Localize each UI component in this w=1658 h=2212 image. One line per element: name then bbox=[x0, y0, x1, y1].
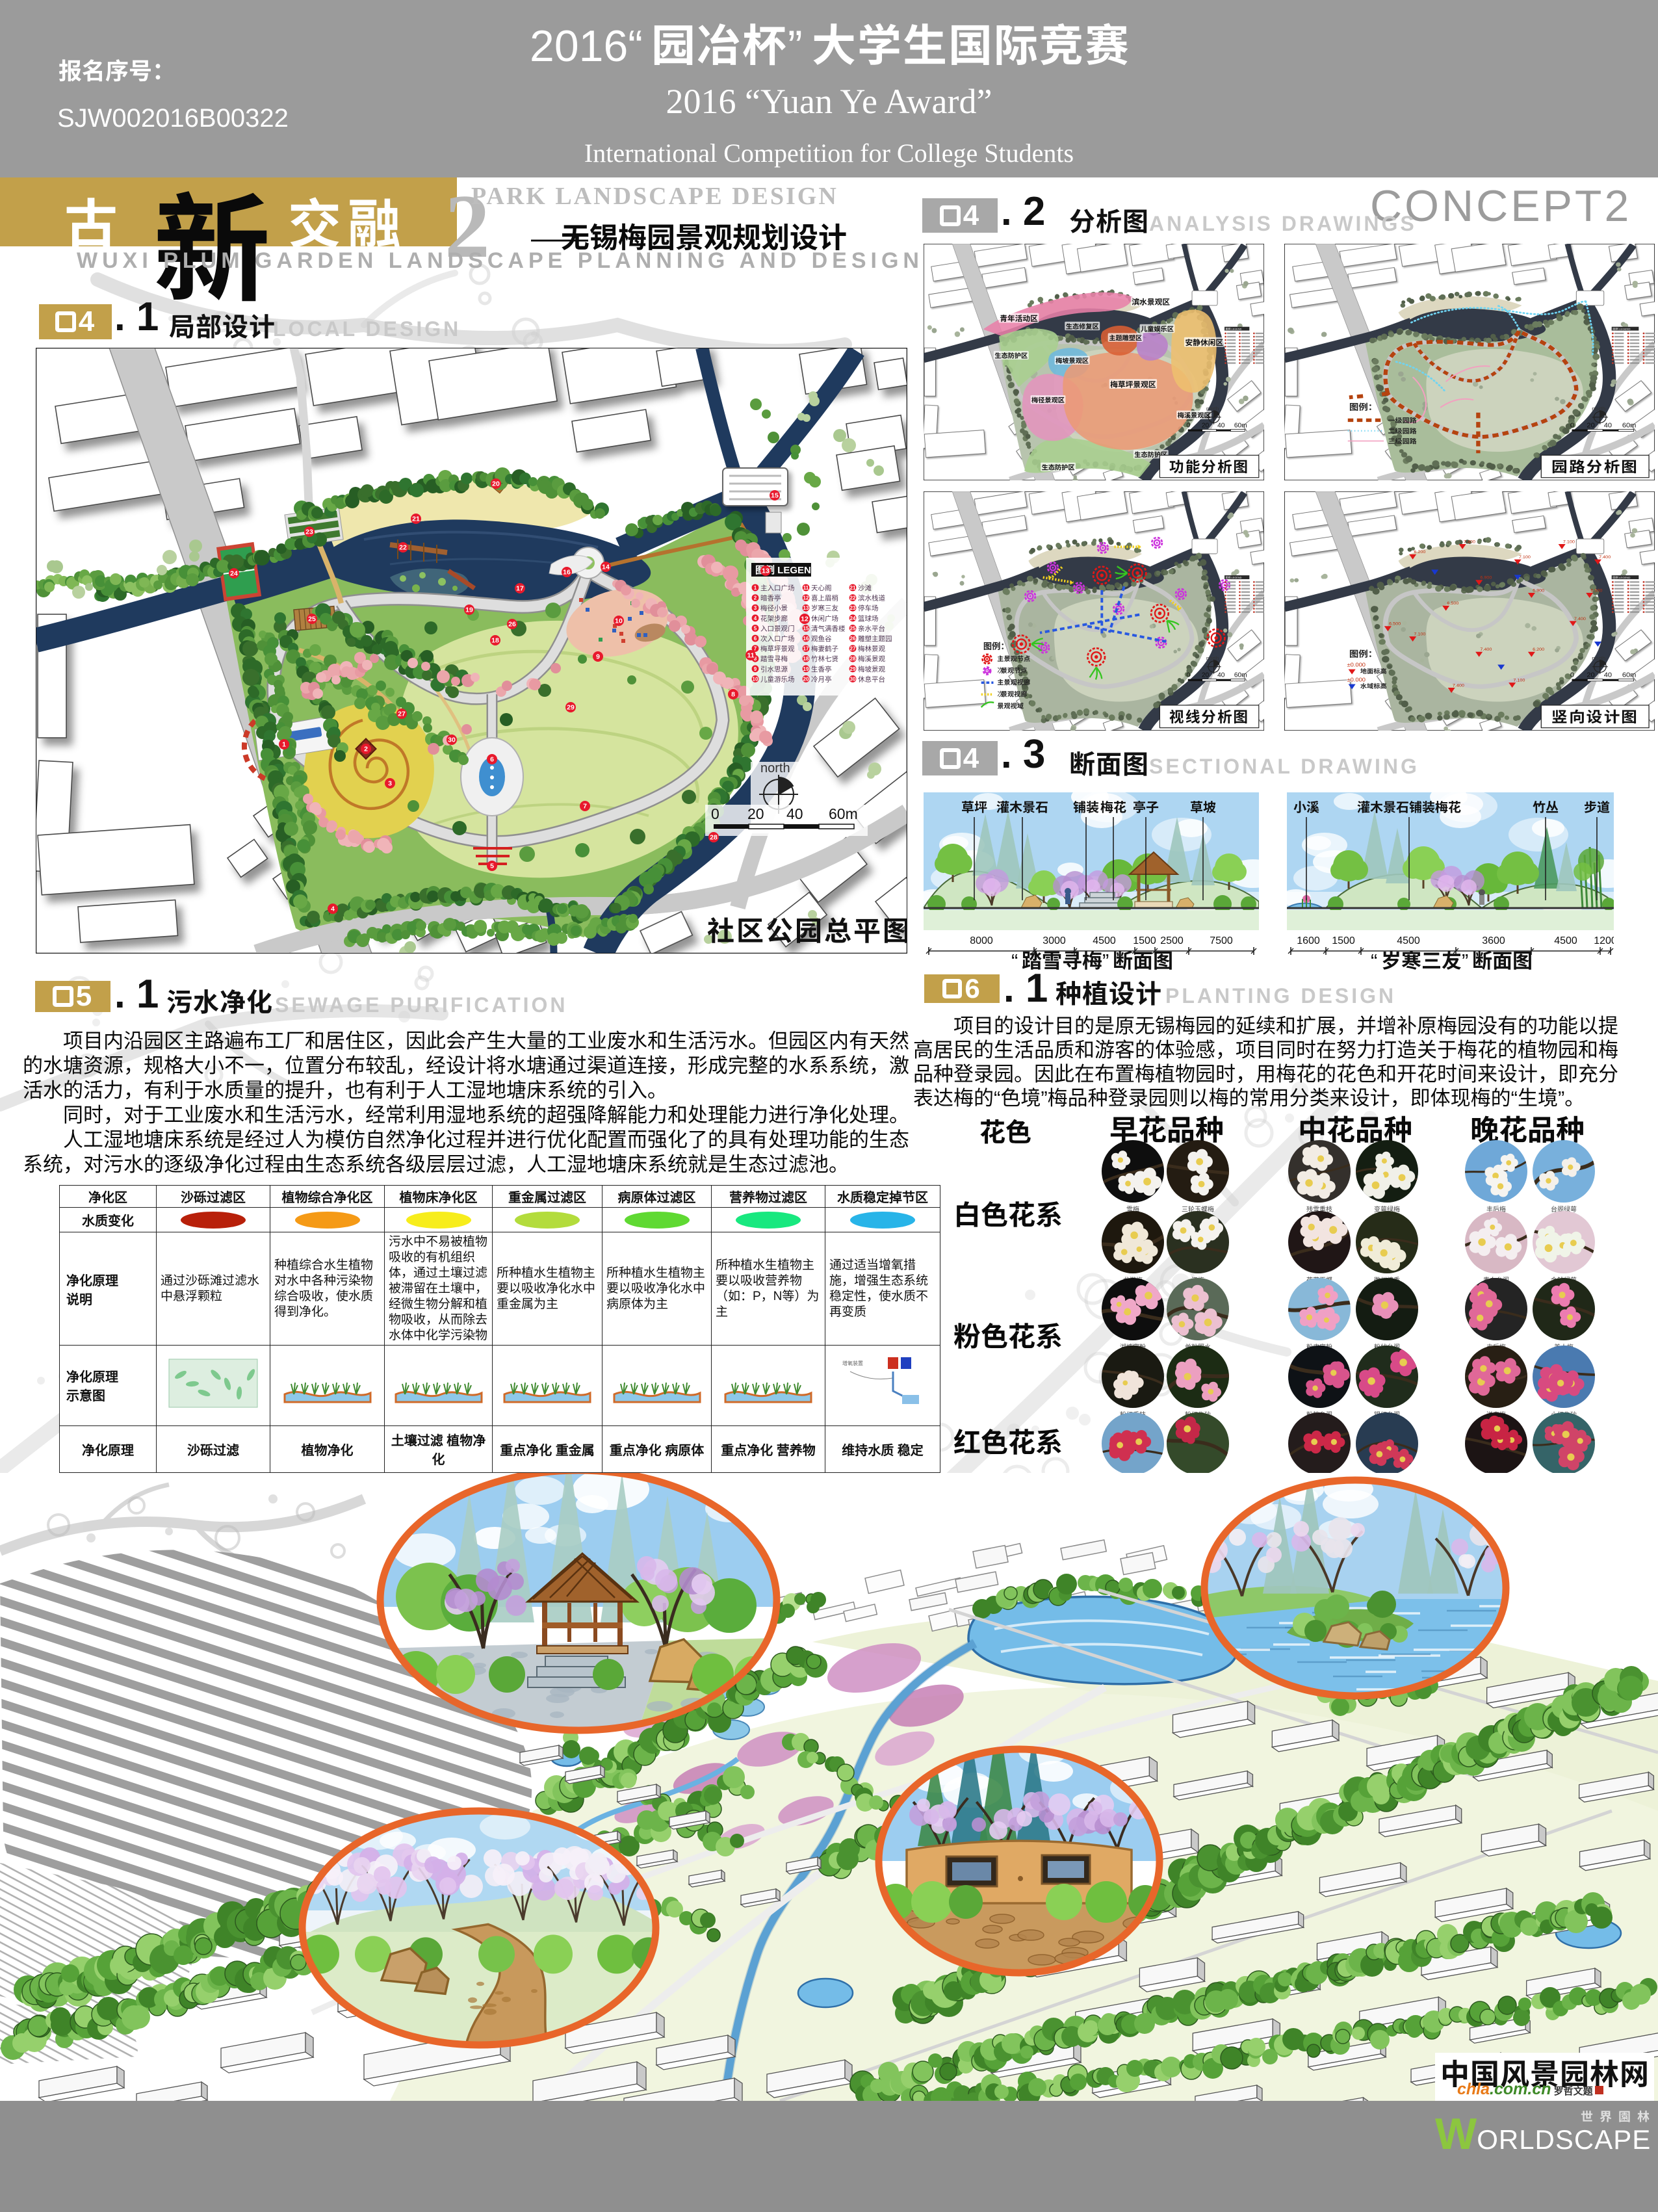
svg-text:10: 10 bbox=[753, 676, 758, 682]
svg-text:23: 23 bbox=[850, 605, 856, 611]
svg-text:踏雪寻梅: 踏雪寻梅 bbox=[760, 655, 788, 663]
svg-text:25: 25 bbox=[308, 616, 316, 623]
svg-text:2: 2 bbox=[364, 746, 368, 753]
svg-text:儿童游乐场: 儿童游乐场 bbox=[760, 675, 795, 683]
svg-text:28: 28 bbox=[850, 656, 856, 662]
svg-text:梅林景观: 梅林景观 bbox=[858, 645, 885, 653]
svg-text:观鱼谷: 观鱼谷 bbox=[811, 634, 832, 643]
svg-text:生香亭: 生香亭 bbox=[811, 665, 832, 673]
svg-text:40: 40 bbox=[1217, 671, 1225, 679]
svg-text:2500: 2500 bbox=[1160, 935, 1184, 946]
svg-text:8000: 8000 bbox=[970, 935, 993, 946]
svg-text:16: 16 bbox=[803, 636, 809, 642]
svg-text:40: 40 bbox=[1217, 422, 1225, 429]
svg-text:入口景观门: 入口景观门 bbox=[760, 624, 795, 632]
svg-text:”: ” bbox=[1102, 950, 1109, 972]
svg-text:6.200: 6.200 bbox=[1414, 550, 1425, 554]
svg-text:7.100: 7.100 bbox=[1414, 632, 1425, 637]
svg-text:40: 40 bbox=[786, 805, 803, 822]
svg-text:13: 13 bbox=[803, 605, 809, 611]
svg-text:岁寒三友: 岁寒三友 bbox=[811, 604, 838, 612]
svg-text:雕塑主题园: 雕塑主题园 bbox=[858, 634, 892, 643]
svg-text:60m: 60m bbox=[1234, 671, 1247, 679]
svg-text:20: 20 bbox=[803, 676, 809, 682]
svg-text:4500: 4500 bbox=[1554, 935, 1577, 946]
svg-text:图例 LEGEND: 图例 LEGEND bbox=[1226, 327, 1242, 330]
svg-text:2016“: 2016“ bbox=[530, 21, 643, 71]
svg-text:1: 1 bbox=[282, 741, 286, 749]
svg-text:7.100: 7.100 bbox=[1513, 679, 1525, 683]
svg-text:13: 13 bbox=[762, 567, 770, 575]
svg-text:24: 24 bbox=[850, 616, 856, 621]
svg-text:60m: 60m bbox=[1622, 671, 1637, 679]
svg-text:17: 17 bbox=[516, 585, 524, 593]
svg-text:”: ” bbox=[788, 21, 803, 71]
svg-text:1500: 1500 bbox=[1332, 935, 1355, 946]
svg-text:26: 26 bbox=[508, 621, 516, 629]
svg-text:0: 0 bbox=[1186, 422, 1190, 429]
svg-text:12: 12 bbox=[803, 595, 809, 601]
svg-text:26: 26 bbox=[850, 636, 856, 642]
svg-text:7: 7 bbox=[754, 646, 757, 652]
svg-text:29: 29 bbox=[567, 704, 575, 712]
svg-text:30: 30 bbox=[850, 676, 856, 682]
svg-text:8: 8 bbox=[731, 691, 735, 699]
svg-text:6.200: 6.200 bbox=[1533, 647, 1544, 652]
svg-text:40: 40 bbox=[1604, 671, 1612, 679]
svg-text:60m: 60m bbox=[829, 805, 858, 822]
svg-text:20: 20 bbox=[1202, 422, 1210, 429]
svg-text:north: north bbox=[1206, 406, 1219, 412]
svg-text:7.400: 7.400 bbox=[1599, 555, 1611, 560]
svg-text:29: 29 bbox=[850, 666, 856, 672]
svg-text:18: 18 bbox=[803, 656, 809, 662]
svg-text:25: 25 bbox=[850, 625, 856, 631]
svg-text:19: 19 bbox=[803, 666, 809, 672]
svg-text:20: 20 bbox=[1587, 671, 1594, 679]
svg-text:停车场: 停车场 bbox=[858, 604, 879, 612]
svg-text:天心阁: 天心阁 bbox=[811, 584, 832, 592]
svg-text:±0.000: ±0.000 bbox=[1347, 677, 1366, 683]
svg-text:花架步廊: 花架步廊 bbox=[760, 614, 788, 623]
svg-text:14: 14 bbox=[602, 564, 610, 571]
svg-text:12: 12 bbox=[801, 616, 809, 623]
svg-text:次入口广场: 次入口广场 bbox=[760, 634, 795, 643]
svg-text:north: north bbox=[1592, 406, 1605, 412]
svg-text:22: 22 bbox=[850, 595, 856, 601]
svg-text:24: 24 bbox=[230, 570, 238, 578]
svg-text:主入口广场: 主入口广场 bbox=[760, 584, 795, 592]
svg-text:7: 7 bbox=[583, 803, 587, 811]
svg-text:“: “ bbox=[1371, 950, 1377, 972]
svg-text:0: 0 bbox=[1570, 422, 1574, 429]
svg-text:20: 20 bbox=[1202, 671, 1210, 679]
svg-text:20: 20 bbox=[1587, 422, 1594, 429]
svg-text:6: 6 bbox=[490, 756, 494, 764]
svg-text:11: 11 bbox=[747, 652, 754, 660]
svg-text:15: 15 bbox=[771, 492, 779, 500]
svg-text:9: 9 bbox=[596, 653, 600, 661]
svg-text:喜上眉梢: 喜上眉梢 bbox=[811, 594, 838, 603]
svg-text:9: 9 bbox=[754, 666, 757, 672]
svg-text:图例 LEGEND: 图例 LEGEND bbox=[1613, 575, 1630, 579]
svg-text:梅妻鹤子: 梅妻鹤子 bbox=[811, 645, 838, 653]
svg-text:滨水栈道: 滨水栈道 bbox=[858, 594, 885, 603]
svg-text:10: 10 bbox=[615, 618, 623, 625]
svg-text:7.400: 7.400 bbox=[1453, 684, 1464, 688]
svg-text:沙滩: 沙滩 bbox=[858, 584, 872, 592]
svg-text:6: 6 bbox=[754, 636, 757, 642]
svg-text:”: ” bbox=[1462, 950, 1468, 972]
svg-text:休闲广场: 休闲广场 bbox=[811, 614, 838, 623]
svg-text:30: 30 bbox=[448, 736, 456, 744]
svg-text:图例 LEGEND: 图例 LEGEND bbox=[1613, 327, 1630, 331]
svg-text:20: 20 bbox=[492, 480, 500, 488]
svg-text:6.900: 6.900 bbox=[1480, 576, 1492, 580]
svg-text:40: 40 bbox=[1604, 422, 1612, 429]
svg-text:21: 21 bbox=[850, 585, 856, 591]
svg-text:20: 20 bbox=[747, 805, 764, 822]
svg-text:3: 3 bbox=[388, 780, 392, 788]
svg-text:6.500: 6.500 bbox=[1389, 622, 1401, 627]
svg-text:27: 27 bbox=[850, 646, 856, 652]
svg-text:6.500: 6.500 bbox=[1590, 589, 1602, 593]
svg-text:0: 0 bbox=[711, 805, 719, 822]
svg-text:north: north bbox=[1592, 655, 1605, 662]
svg-text:7500: 7500 bbox=[1210, 935, 1233, 946]
svg-text:5: 5 bbox=[490, 863, 494, 870]
svg-text:竹林七贤: 竹林七贤 bbox=[811, 655, 838, 663]
svg-text:7.400: 7.400 bbox=[1574, 617, 1586, 621]
svg-text:暗香亭: 暗香亭 bbox=[760, 594, 781, 603]
svg-text:11: 11 bbox=[803, 585, 809, 591]
svg-text:60m: 60m bbox=[1622, 422, 1637, 429]
svg-text:6.500: 6.500 bbox=[1447, 601, 1458, 606]
svg-text:梅坡景观: 梅坡景观 bbox=[858, 665, 885, 673]
svg-text:28: 28 bbox=[710, 834, 718, 842]
svg-text:冷月亭: 冷月亭 bbox=[811, 675, 832, 683]
svg-text:3: 3 bbox=[754, 605, 757, 611]
svg-text:15: 15 bbox=[803, 625, 809, 631]
svg-text:0: 0 bbox=[1570, 671, 1574, 679]
svg-text:清气满香楼: 清气满香楼 bbox=[811, 624, 846, 632]
svg-text:4: 4 bbox=[331, 905, 335, 913]
svg-text:23: 23 bbox=[305, 528, 313, 536]
svg-text:21: 21 bbox=[412, 515, 420, 523]
svg-text:增氧装置: 增氧装置 bbox=[842, 1360, 863, 1366]
svg-text:引水思源: 引水思源 bbox=[760, 665, 788, 673]
svg-text:1: 1 bbox=[754, 585, 757, 591]
svg-text:4: 4 bbox=[754, 616, 757, 621]
svg-text:休息平台: 休息平台 bbox=[858, 675, 885, 683]
svg-text:6.900: 6.900 bbox=[1533, 589, 1544, 593]
svg-text:3600: 3600 bbox=[1482, 935, 1505, 946]
svg-text:梅草坪景观: 梅草坪景观 bbox=[760, 645, 795, 653]
svg-text:4500: 4500 bbox=[1397, 935, 1420, 946]
svg-text:60m: 60m bbox=[1234, 422, 1247, 429]
svg-text:1600: 1600 bbox=[1297, 935, 1320, 946]
svg-text:17: 17 bbox=[803, 646, 809, 652]
svg-text:19: 19 bbox=[465, 606, 473, 614]
svg-text:5: 5 bbox=[754, 625, 757, 631]
svg-text:图例 LEGEND: 图例 LEGEND bbox=[1226, 576, 1242, 579]
svg-text:7.100: 7.100 bbox=[1519, 555, 1531, 560]
svg-text:north: north bbox=[1206, 655, 1219, 661]
svg-text:篮球场: 篮球场 bbox=[858, 614, 879, 623]
svg-text:2: 2 bbox=[754, 595, 757, 601]
svg-text:1500: 1500 bbox=[1133, 935, 1156, 946]
svg-text:4500: 4500 bbox=[1093, 935, 1116, 946]
svg-text:22: 22 bbox=[399, 544, 407, 552]
svg-text:3000: 3000 bbox=[1043, 935, 1066, 946]
svg-text:north: north bbox=[760, 761, 790, 775]
svg-text:27: 27 bbox=[398, 710, 406, 718]
svg-text:±0.000: ±0.000 bbox=[1347, 662, 1366, 668]
svg-text:16: 16 bbox=[563, 569, 571, 577]
svg-text:7.400: 7.400 bbox=[1480, 647, 1492, 652]
svg-text:7.100: 7.100 bbox=[1563, 540, 1575, 545]
svg-text:0: 0 bbox=[1186, 671, 1190, 679]
svg-text:梅溪景观: 梅溪景观 bbox=[858, 655, 885, 663]
svg-text:亲水平台: 亲水平台 bbox=[858, 624, 885, 632]
svg-text:梅径小景: 梅径小景 bbox=[760, 604, 788, 612]
svg-text:1200: 1200 bbox=[1594, 935, 1614, 946]
svg-text:7.400: 7.400 bbox=[1464, 540, 1475, 545]
svg-text:18: 18 bbox=[491, 637, 499, 645]
